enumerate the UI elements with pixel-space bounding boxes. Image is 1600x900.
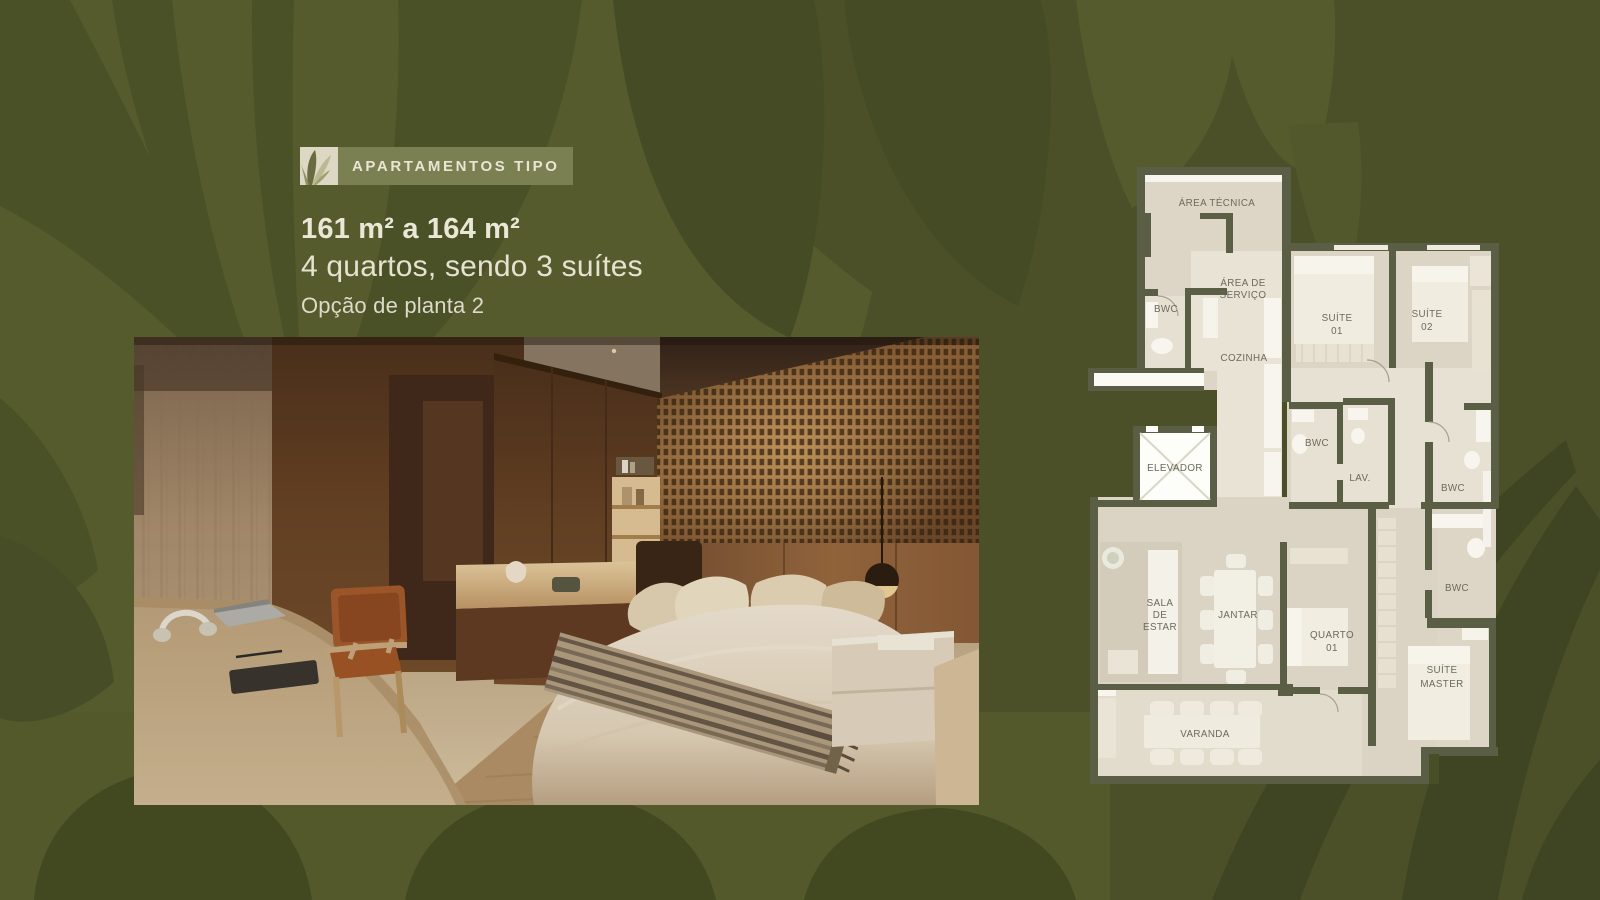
svg-text:QUARTO: QUARTO bbox=[1310, 630, 1354, 641]
svg-text:VARANDA: VARANDA bbox=[1180, 729, 1230, 740]
svg-text:BWC: BWC bbox=[1305, 438, 1329, 449]
svg-text:BWC: BWC bbox=[1154, 304, 1178, 315]
svg-text:DE: DE bbox=[1153, 610, 1167, 621]
svg-text:ESTAR: ESTAR bbox=[1143, 622, 1177, 633]
svg-text:SALA: SALA bbox=[1147, 598, 1174, 609]
svg-text:SUÍTE: SUÍTE bbox=[1322, 313, 1353, 324]
svg-text:BWC: BWC bbox=[1445, 583, 1469, 594]
svg-text:01: 01 bbox=[1326, 643, 1338, 654]
svg-text:SUÍTE: SUÍTE bbox=[1412, 309, 1443, 320]
svg-text:ELEVADOR: ELEVADOR bbox=[1147, 463, 1203, 474]
svg-text:LAV.: LAV. bbox=[1349, 473, 1370, 484]
svg-text:ÁREA DE: ÁREA DE bbox=[1220, 278, 1265, 289]
svg-text:ÁREA TÉCNICA: ÁREA TÉCNICA bbox=[1179, 198, 1256, 209]
svg-text:01: 01 bbox=[1331, 326, 1343, 337]
svg-text:02: 02 bbox=[1421, 322, 1433, 333]
svg-text:SERVIÇO: SERVIÇO bbox=[1220, 290, 1267, 301]
svg-text:JANTAR: JANTAR bbox=[1218, 610, 1258, 621]
svg-text:BWC: BWC bbox=[1441, 483, 1465, 494]
svg-text:COZINHA: COZINHA bbox=[1221, 353, 1268, 364]
svg-text:MASTER: MASTER bbox=[1420, 679, 1463, 690]
svg-text:SUÍTE: SUÍTE bbox=[1427, 665, 1458, 676]
